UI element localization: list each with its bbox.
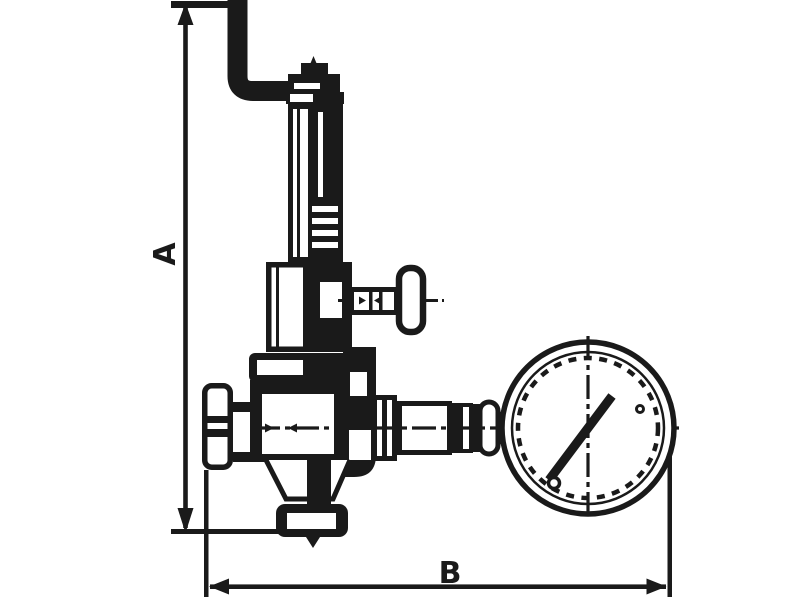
inlet-pipe-elbow	[238, 0, 292, 91]
spring-bonnet	[291, 104, 342, 262]
pressure-gauge	[502, 336, 674, 521]
dimension-b-right-extension-line	[668, 449, 673, 597]
dimension-b-left-extension-line	[204, 470, 209, 597]
spring-housing	[269, 264, 350, 352]
t-handle-knob	[399, 268, 423, 332]
dimension-b-arrow-left-icon	[209, 579, 229, 595]
dimension-a-label: A	[148, 242, 183, 266]
bonnet-cap	[286, 56, 344, 104]
outlet-flange	[276, 504, 348, 548]
dimension-b-label: B	[439, 556, 462, 591]
dimension-b-arrow-right-icon	[647, 579, 667, 595]
drain-tip	[306, 537, 320, 548]
dimension-a-line	[183, 8, 188, 528]
needle-hub	[549, 478, 560, 489]
valve-dimension-drawing: A B	[0, 0, 800, 598]
gauge-stop-pin	[637, 406, 644, 413]
technical-drawing-canvas: A B	[0, 0, 800, 598]
adjustment-t-handle	[338, 268, 444, 332]
valve-drawing	[202, 0, 679, 548]
inlet-fitting	[202, 386, 253, 468]
